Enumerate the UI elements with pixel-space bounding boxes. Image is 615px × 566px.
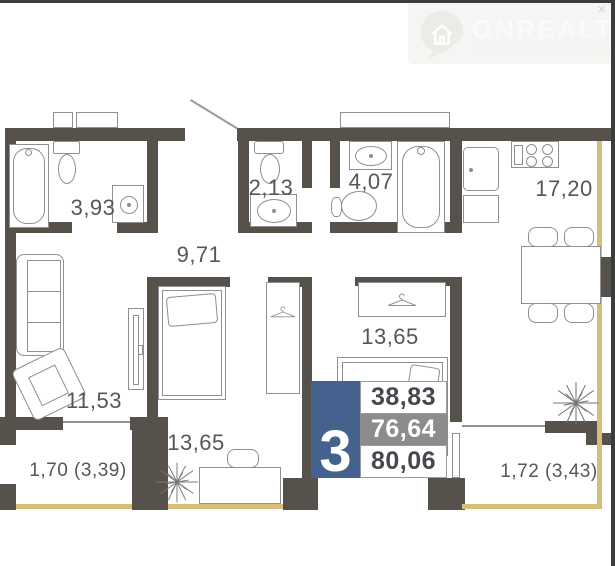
dining-table-icon <box>521 246 601 304</box>
wall <box>450 277 462 422</box>
bathtub-icon <box>9 144 49 228</box>
toilet-icon <box>254 141 284 154</box>
area-label-bathroom: 3,93 <box>71 195 116 221</box>
kitchen-counter-icon <box>463 195 499 223</box>
area-label-kitchen: 17,20 <box>535 176 593 202</box>
window-line <box>597 141 602 509</box>
wall <box>5 128 185 141</box>
washing-machine-icon <box>112 185 144 223</box>
area-label-balcony-left: 1,70 (3,39) <box>29 460 126 482</box>
area-label-bathroom-2: 4,07 <box>349 169 394 195</box>
frame-edge-top <box>0 0 615 3</box>
total-area-value: 80,06 <box>360 445 447 478</box>
brand-pin-icon <box>416 8 468 60</box>
chair-icon <box>528 303 558 323</box>
wall <box>330 141 340 188</box>
wall <box>238 141 249 233</box>
desk-icon <box>199 467 281 504</box>
hanger-icon <box>386 292 418 308</box>
stove-icon <box>511 141 559 168</box>
toilet-bowl-icon <box>58 154 76 184</box>
chair-icon <box>227 449 259 468</box>
wall <box>130 417 168 430</box>
area-label-bedroom-1: 13,65 <box>167 430 225 456</box>
wall <box>147 141 158 225</box>
sofa-icon <box>16 254 64 356</box>
wall <box>450 141 462 233</box>
wall <box>237 128 612 141</box>
chair-icon <box>564 227 594 247</box>
balcony-door-sill <box>462 425 545 427</box>
wall <box>302 141 312 188</box>
wall <box>147 277 158 430</box>
bed-icon <box>158 286 226 400</box>
shaft-box <box>53 112 73 128</box>
window-frame <box>452 433 460 478</box>
bathtub-icon <box>397 141 445 233</box>
area-label-balcony-right: 1,72 (3,43) <box>500 461 597 483</box>
closet-icon <box>266 282 300 394</box>
fridge-icon <box>463 147 499 191</box>
brand-tagline: ОБЪЯВЛЕНИЯ НЕДВИЖИМОСТИ <box>472 46 615 55</box>
chair-icon <box>564 303 594 323</box>
floor-plan: 3,93 2,13 4,07 17,20 9,71 11,53 13,65 13… <box>0 0 615 566</box>
area-label-hallway: 9,71 <box>177 242 222 268</box>
entrance-door-icon <box>190 99 238 129</box>
area-label-wc: 2,13 <box>249 175 294 201</box>
tv-stand-icon <box>128 308 144 390</box>
sink-icon <box>349 141 392 170</box>
wall <box>428 478 465 510</box>
apartment-summary-badge: 3 38,83 76,64 80,06 <box>311 381 447 478</box>
shaft-box <box>76 112 118 128</box>
hanger-icon <box>269 305 297 319</box>
brand-name: ONREALT <box>472 14 613 45</box>
plant-icon <box>154 458 200 506</box>
rooms-count: 3 <box>311 381 360 478</box>
corner-close-icon: ✕ <box>597 3 606 16</box>
wall <box>283 478 318 510</box>
toilet-bowl-icon <box>341 191 377 221</box>
frame-edge-right <box>611 0 615 566</box>
area-label-bedroom-2: 13,65 <box>361 324 419 350</box>
living-area-value: 38,83 <box>360 381 447 414</box>
toilet-icon <box>53 141 80 154</box>
chair-icon <box>528 227 558 247</box>
shaft-box <box>340 112 450 128</box>
plant-icon <box>550 380 602 426</box>
area-label-living-room: 11,53 <box>66 388 122 414</box>
balcony-rail <box>462 504 602 509</box>
wall <box>0 484 16 510</box>
wardrobe-icon <box>358 282 446 317</box>
brand-logo: ONREALT ОБЪЯВЛЕНИЯ НЕДВИЖИМОСТИ <box>408 2 615 64</box>
balcony-rail <box>16 504 132 509</box>
wall <box>117 222 158 233</box>
secondary-area-value: 76,64 <box>360 414 447 445</box>
balcony-door-sill <box>63 421 130 423</box>
